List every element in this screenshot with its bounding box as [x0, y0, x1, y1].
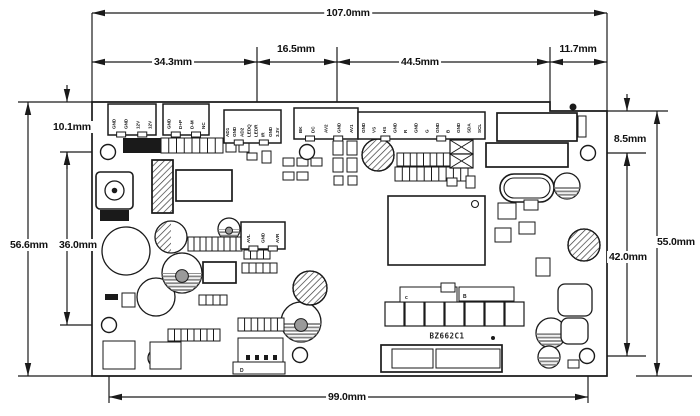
crystal-oscillator — [504, 178, 550, 198]
rect — [334, 176, 343, 185]
rect — [348, 176, 357, 185]
pin-label: GND — [268, 126, 273, 137]
pin-label: D+P — [178, 120, 183, 129]
adjust-hole — [225, 227, 232, 234]
pin-label: AV1 — [349, 124, 354, 133]
dim-arrow — [575, 394, 588, 400]
adjust-hole — [176, 270, 189, 283]
connector-tab — [334, 136, 343, 141]
rect — [568, 360, 579, 368]
mounting-hole — [580, 349, 595, 364]
blackrect — [273, 355, 277, 360]
dim-arrow — [337, 59, 350, 65]
pin-label: GND — [336, 122, 341, 133]
connector-tab — [138, 132, 147, 137]
rect2 — [203, 262, 236, 283]
rect — [283, 172, 294, 180]
silkscreen-letter: c — [405, 295, 408, 301]
key-led-connector — [224, 110, 281, 143]
rect — [392, 349, 433, 368]
pin-label: BK — [298, 126, 303, 133]
dim-label-left-height: 56.6mm — [8, 239, 50, 251]
pin-label: AV2 — [324, 124, 329, 133]
blackrect — [105, 294, 118, 300]
regulator-ic — [176, 170, 232, 201]
mosfet-row — [445, 302, 464, 326]
adjust-hole — [295, 319, 308, 332]
dim-label-overall-height: 55.0mm — [655, 236, 697, 248]
rect — [262, 151, 271, 163]
pin-label: GND — [124, 118, 129, 129]
rect — [297, 172, 308, 180]
pin-label: SCL — [477, 124, 482, 133]
mounting-hole — [300, 145, 315, 160]
dim-arrow — [654, 363, 660, 376]
dim-arrow — [594, 59, 607, 65]
pin-label: GND — [456, 122, 461, 133]
blackrect — [264, 355, 268, 360]
mosfet-row — [425, 302, 444, 326]
rect — [536, 258, 550, 276]
dim-label-seg1: 34.3mm — [152, 56, 194, 68]
blackrect — [100, 210, 129, 221]
pin-label: 12V — [136, 120, 141, 129]
pin-label: NC — [201, 122, 206, 129]
connector-tab — [171, 132, 180, 137]
pin-label: HS — [382, 127, 387, 133]
dim-arrow — [594, 10, 607, 16]
dim-label-overall-width: 107.0mm — [324, 7, 372, 19]
rect — [103, 341, 135, 369]
rect — [519, 222, 535, 234]
connector-tab — [249, 246, 258, 251]
pin-label: GND — [361, 122, 366, 133]
mosfet-row — [385, 302, 404, 326]
rect — [347, 141, 357, 155]
fiducial-mark — [570, 104, 577, 111]
dim-arrow — [257, 59, 270, 65]
rect — [447, 178, 457, 186]
connector-tab — [381, 136, 390, 141]
blackrect — [255, 355, 259, 360]
dim-arrow — [64, 152, 70, 165]
dim-arrow — [624, 153, 630, 166]
pin-label: AVL — [246, 234, 251, 243]
rect — [247, 153, 257, 160]
rect — [347, 158, 357, 172]
dim-arrow — [64, 312, 70, 325]
inductor — [293, 271, 327, 305]
mounting-hole — [101, 145, 116, 160]
pin-label: LEDR — [254, 124, 259, 137]
connector-tab — [306, 136, 315, 141]
pin-label: DC — [311, 126, 316, 133]
connector-tab — [259, 140, 268, 145]
pin-label: GND — [435, 122, 440, 133]
dim-arrow — [654, 111, 660, 124]
pin-label: GND — [112, 118, 117, 129]
dim-arrow — [25, 363, 31, 376]
rect — [466, 176, 475, 188]
pin-label: VS — [371, 127, 376, 133]
mounting-hole — [293, 348, 308, 363]
pinrow — [242, 263, 277, 273]
rect — [578, 116, 586, 137]
dim-arrow — [624, 98, 630, 111]
pin-label: AD2 — [239, 127, 244, 137]
pin-label: GND — [232, 126, 237, 137]
rect — [436, 349, 500, 368]
heatsink — [152, 160, 173, 213]
dim-label-hole-offset-top: 10.1mm — [51, 121, 93, 133]
pin-label: AD1 — [225, 127, 230, 137]
connector-tab — [117, 132, 126, 137]
dc-power-jack — [112, 188, 118, 194]
rect — [498, 203, 516, 219]
pcb-diagram-canvas: GNDGND12V12VGNDD+PD-MNCAD1GNDAD2LEDQLEDR… — [0, 0, 700, 416]
dim-arrow — [537, 59, 550, 65]
pin-label: LEDQ — [246, 124, 251, 137]
inductor — [568, 229, 600, 261]
pin-label: GND — [261, 232, 266, 243]
dim-label-seg4: 11.7mm — [557, 43, 598, 55]
connector-tab — [234, 140, 243, 145]
pin-label: GND — [414, 122, 419, 133]
mosfet-row — [485, 302, 504, 326]
connector-tab — [268, 246, 277, 251]
dim-arrow — [64, 89, 70, 102]
mounting-hole — [102, 318, 117, 333]
dim-arrow — [550, 59, 563, 65]
dim-arrow — [109, 394, 122, 400]
pin-label: GND — [393, 122, 398, 133]
rect — [524, 200, 538, 210]
connector-tab — [437, 136, 446, 141]
board-model-number: BZ662C1 — [429, 332, 464, 341]
rect — [283, 158, 294, 166]
silkscreen-letter: D — [240, 368, 244, 374]
rect — [495, 228, 511, 242]
dim-arrow — [624, 343, 630, 356]
rect — [150, 342, 181, 369]
pin1-mark — [472, 201, 479, 208]
blackdot — [491, 336, 495, 340]
mounting-hole — [581, 146, 596, 161]
dim-label-hole-span-left: 36.0mm — [57, 239, 99, 251]
pin-label: G — [424, 129, 429, 133]
rect — [441, 283, 455, 292]
dim-label-hole-span-bottom: 99.0mm — [326, 391, 368, 403]
silkscreen-letter: B — [463, 294, 467, 300]
rect — [459, 287, 514, 301]
blackrect — [123, 138, 161, 153]
pin-label: AVR — [275, 233, 280, 243]
main-ic — [388, 196, 485, 265]
rect — [311, 158, 322, 166]
roundrect — [561, 318, 588, 344]
pin-label: SDA — [467, 123, 472, 133]
rect — [122, 293, 135, 307]
av-connector — [294, 108, 358, 139]
roundrect — [558, 284, 592, 316]
dim-label-seg2: 16.5mm — [275, 43, 317, 55]
dim-label-seg3: 44.5mm — [399, 56, 441, 68]
pin-label: IR — [261, 132, 266, 137]
dim-arrow — [25, 102, 31, 115]
pin-label: 12V — [148, 120, 153, 129]
lvds-socket — [486, 143, 568, 167]
connector-tab — [192, 132, 201, 137]
rect — [333, 158, 343, 172]
blackrect — [246, 355, 250, 360]
rect — [333, 141, 343, 155]
dim-label-hole-offset-right: 8.5mm — [612, 133, 648, 145]
dim-arrow — [92, 59, 105, 65]
mosfet-row — [405, 302, 424, 326]
electrolytic-capacitor — [102, 227, 150, 275]
pin-label: D-M — [189, 120, 194, 129]
inductor — [362, 139, 394, 171]
dim-arrow — [244, 59, 257, 65]
resistor-array — [188, 237, 242, 251]
mosfet-row — [505, 302, 524, 326]
pin-label: 3.3V — [275, 127, 280, 137]
dim-label-hole-span-right: 42.0mm — [607, 251, 649, 263]
dim-arrow — [324, 59, 337, 65]
dim-arrow — [92, 10, 105, 16]
pin-label: GND — [166, 118, 171, 129]
mosfet-row — [465, 302, 484, 326]
pcb-dimension-drawing: GNDGND12V12VGNDD+PD-MNCAD1GNDAD2LEDQLEDR… — [0, 0, 700, 416]
lvds-connector — [497, 113, 577, 141]
